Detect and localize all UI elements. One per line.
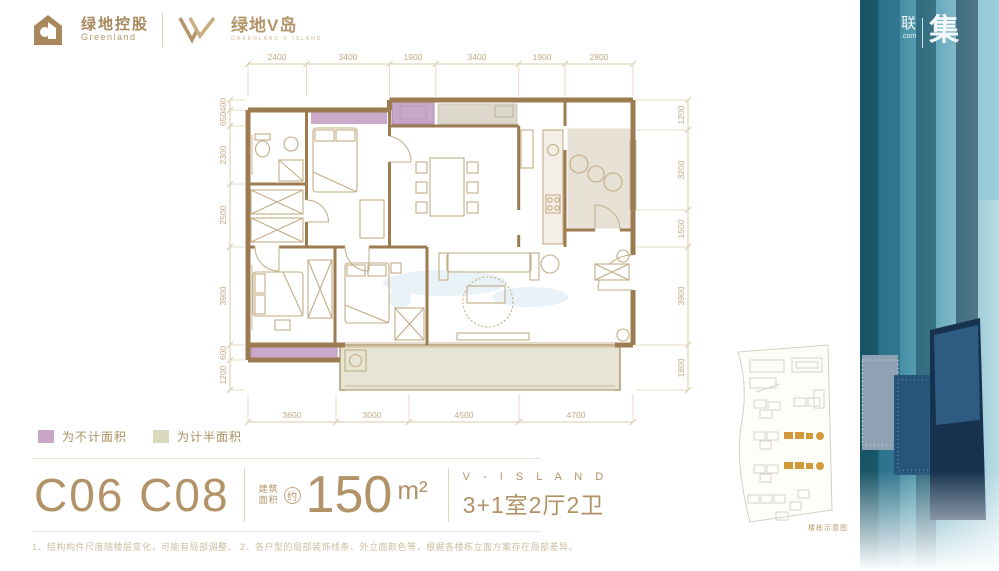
svg-text:1200: 1200 <box>676 105 686 124</box>
disclaimer-text: 1、结构构件尺度随楼层变化，可能有局部调整。 2、各户型的局部装饰线条、外立面颜… <box>32 540 592 553</box>
svg-text:3900: 3900 <box>676 286 686 305</box>
svg-text:1900: 1900 <box>404 52 423 62</box>
legend-swatch-green <box>153 430 169 443</box>
svg-text:2500: 2500 <box>218 205 228 224</box>
area-legend: 为不计面积 为计半面积 <box>38 428 242 445</box>
unit-code: C06 C08 <box>34 468 230 522</box>
legend-item-no-area: 为不计面积 <box>38 428 127 445</box>
svg-text:1200: 1200 <box>218 365 228 384</box>
floorplan-poster: 绿地控股 Greenland 绿地V岛 GREENLAND V ISLAND <box>0 0 999 571</box>
svg-text:600: 600 <box>218 346 228 360</box>
watermark-divider <box>922 18 923 48</box>
watermark-cn-small: 联 <box>901 16 916 31</box>
svg-text:3600: 3600 <box>283 410 302 420</box>
svg-text:2800: 2800 <box>590 52 609 62</box>
svg-text:1500: 1500 <box>676 219 686 238</box>
watermark-cn-big: 集 <box>929 16 959 46</box>
entry-cabinet-icon <box>595 264 629 280</box>
visland-name-sub: GREENLAND V ISLAND <box>231 37 322 42</box>
sitemap-caption: 楼栋示意图 <box>808 523 848 533</box>
unit-layout: 3+1室2厅2卫 <box>463 486 609 520</box>
divider-top <box>32 458 540 459</box>
unit-summary: C06 C08 建筑 面积 约 150 m² V - I S L A N D 3… <box>34 464 608 526</box>
watermark-left: 联 .com <box>901 16 916 40</box>
summary-divider-2 <box>448 468 449 522</box>
visland-logo-text: 绿地V岛 GREENLAND V ISLAND <box>231 17 322 42</box>
legend-item-half-area: 为计半面积 <box>153 428 242 445</box>
svg-text:4700: 4700 <box>567 410 586 420</box>
equipment-platform-no-area <box>392 102 434 124</box>
area-group: 建筑 面积 约 150 m² <box>259 469 428 521</box>
logo-divider <box>162 13 163 47</box>
svg-text:1800: 1800 <box>676 358 686 377</box>
top-walkway <box>438 104 517 124</box>
greenland-name-cn: 绿地控股 <box>81 17 149 33</box>
header-logos: 绿地控股 Greenland 绿地V岛 GREENLAND V ISLAND <box>28 12 322 48</box>
site-watermark: 联 .com 集 <box>901 16 959 48</box>
balcony-half-area <box>340 345 620 390</box>
project-name: V - I S L A N D <box>463 471 609 483</box>
area-label-line2: 面积 <box>259 495 279 506</box>
legend-swatch-purple <box>38 430 54 443</box>
svg-text:2400: 2400 <box>268 52 287 62</box>
floor-plan-drawing: 2400 3400 1900 3400 1900 2800 3600 3000 … <box>195 50 715 440</box>
visland-logo-icon <box>176 14 218 46</box>
svg-text:4500: 4500 <box>455 410 474 420</box>
visland-name-cn: 绿地V岛 <box>231 17 322 35</box>
legend-label-no-area: 为不计面积 <box>62 428 127 445</box>
svg-text:3200: 3200 <box>676 160 686 179</box>
svg-text:2300: 2300 <box>218 145 228 164</box>
svg-text:3000: 3000 <box>363 410 382 420</box>
tower-artwork-band: V-ISLAND <box>860 0 999 571</box>
tower-artwork <box>860 0 999 571</box>
svg-text:1900: 1900 <box>533 52 552 62</box>
greenland-logo-icon <box>28 12 68 48</box>
site-map <box>720 340 860 535</box>
area-label-line1: 建筑 <box>259 484 279 495</box>
svg-text:3400: 3400 <box>339 52 358 62</box>
greenland-logo-text: 绿地控股 Greenland <box>81 17 149 42</box>
area-label: 建筑 面积 <box>259 484 279 507</box>
svg-text:650: 650 <box>218 112 228 126</box>
area-unit: m² <box>397 475 427 506</box>
svg-text:3400: 3400 <box>468 52 487 62</box>
svg-text:400: 400 <box>218 98 228 112</box>
planter-no-area-top <box>311 112 387 124</box>
legend-label-half-area: 为计半面积 <box>177 428 242 445</box>
greenland-name-en: Greenland <box>81 33 149 42</box>
summary-divider-1 <box>244 468 245 522</box>
approx-badge: 约 <box>284 487 301 504</box>
watermark-domain: .com <box>901 33 916 40</box>
divider-bottom <box>32 531 540 532</box>
area-value: 150 <box>306 469 393 521</box>
project-column: V - I S L A N D 3+1室2厅2卫 <box>463 471 609 520</box>
svg-text:3900: 3900 <box>218 286 228 305</box>
